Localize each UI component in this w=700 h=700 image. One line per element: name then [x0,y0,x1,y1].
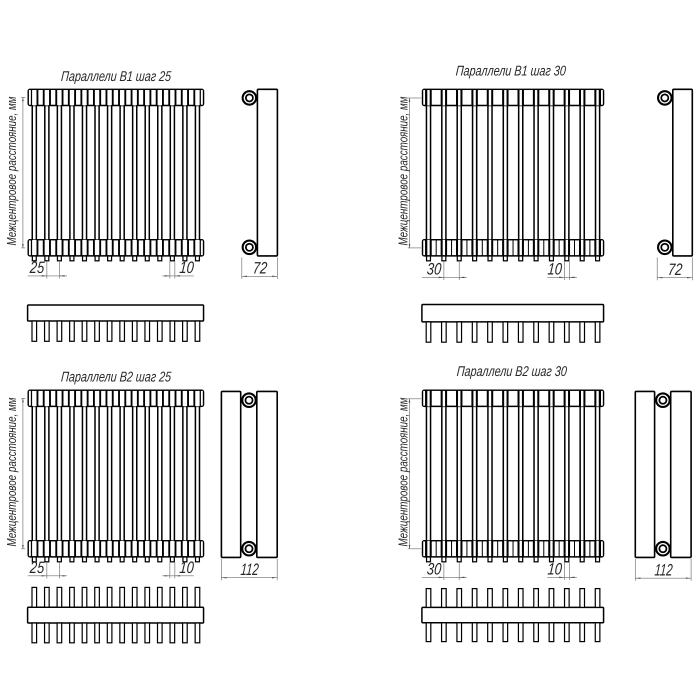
svg-text:112: 112 [654,560,673,579]
svg-text:10: 10 [179,558,195,577]
svg-text:Параллели В2 шаг 30: Параллели В2 шаг 30 [456,364,567,380]
svg-text:10: 10 [179,258,195,277]
svg-text:Параллели В1 шаг 25: Параллели В1 шаг 25 [60,69,171,85]
svg-text:Межцентровое расстояние, мм: Межцентровое расстояние, мм [395,397,410,546]
svg-text:Межцентровое расстояние, мм: Межцентровое расстояние, мм [4,96,19,245]
svg-text:Параллели В2 шаг 25: Параллели В2 шаг 25 [60,369,171,385]
svg-text:112: 112 [240,560,259,579]
svg-text:10: 10 [547,560,563,579]
svg-text:30: 30 [426,260,442,279]
svg-text:72: 72 [252,259,268,278]
svg-text:30: 30 [426,560,442,579]
svg-text:Межцентровое расстояние, мм: Межцентровое расстояние, мм [395,96,410,245]
svg-text:Межцентровое расстояние, мм: Межцентровое расстояние, мм [4,397,19,546]
svg-text:25: 25 [28,258,45,277]
svg-text:25: 25 [28,558,45,577]
svg-text:Параллели В1 шаг 30: Параллели В1 шаг 30 [455,63,566,79]
svg-text:10: 10 [547,260,563,279]
svg-text:72: 72 [667,260,683,279]
